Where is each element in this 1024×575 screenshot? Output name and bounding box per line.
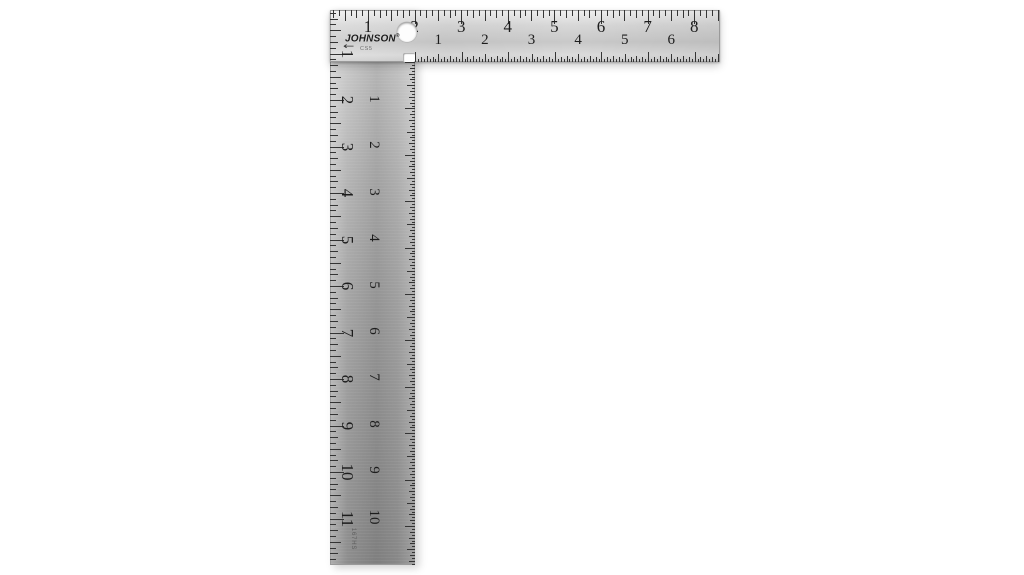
- inner-corner-notch: [403, 53, 415, 62]
- registered-mark: ®: [396, 33, 400, 39]
- part-number: 167HS: [347, 520, 359, 558]
- product-photo: 12345678123456 123456789101112345678910 …: [0, 0, 1024, 575]
- left-arrow-icon: ←: [343, 42, 354, 52]
- part-number-text: 167HS: [350, 528, 356, 550]
- square-tongue-vertical-blade: [330, 10, 415, 565]
- model-label: CS5: [360, 46, 373, 52]
- brand-logo: JOHNSON®: [345, 33, 417, 44]
